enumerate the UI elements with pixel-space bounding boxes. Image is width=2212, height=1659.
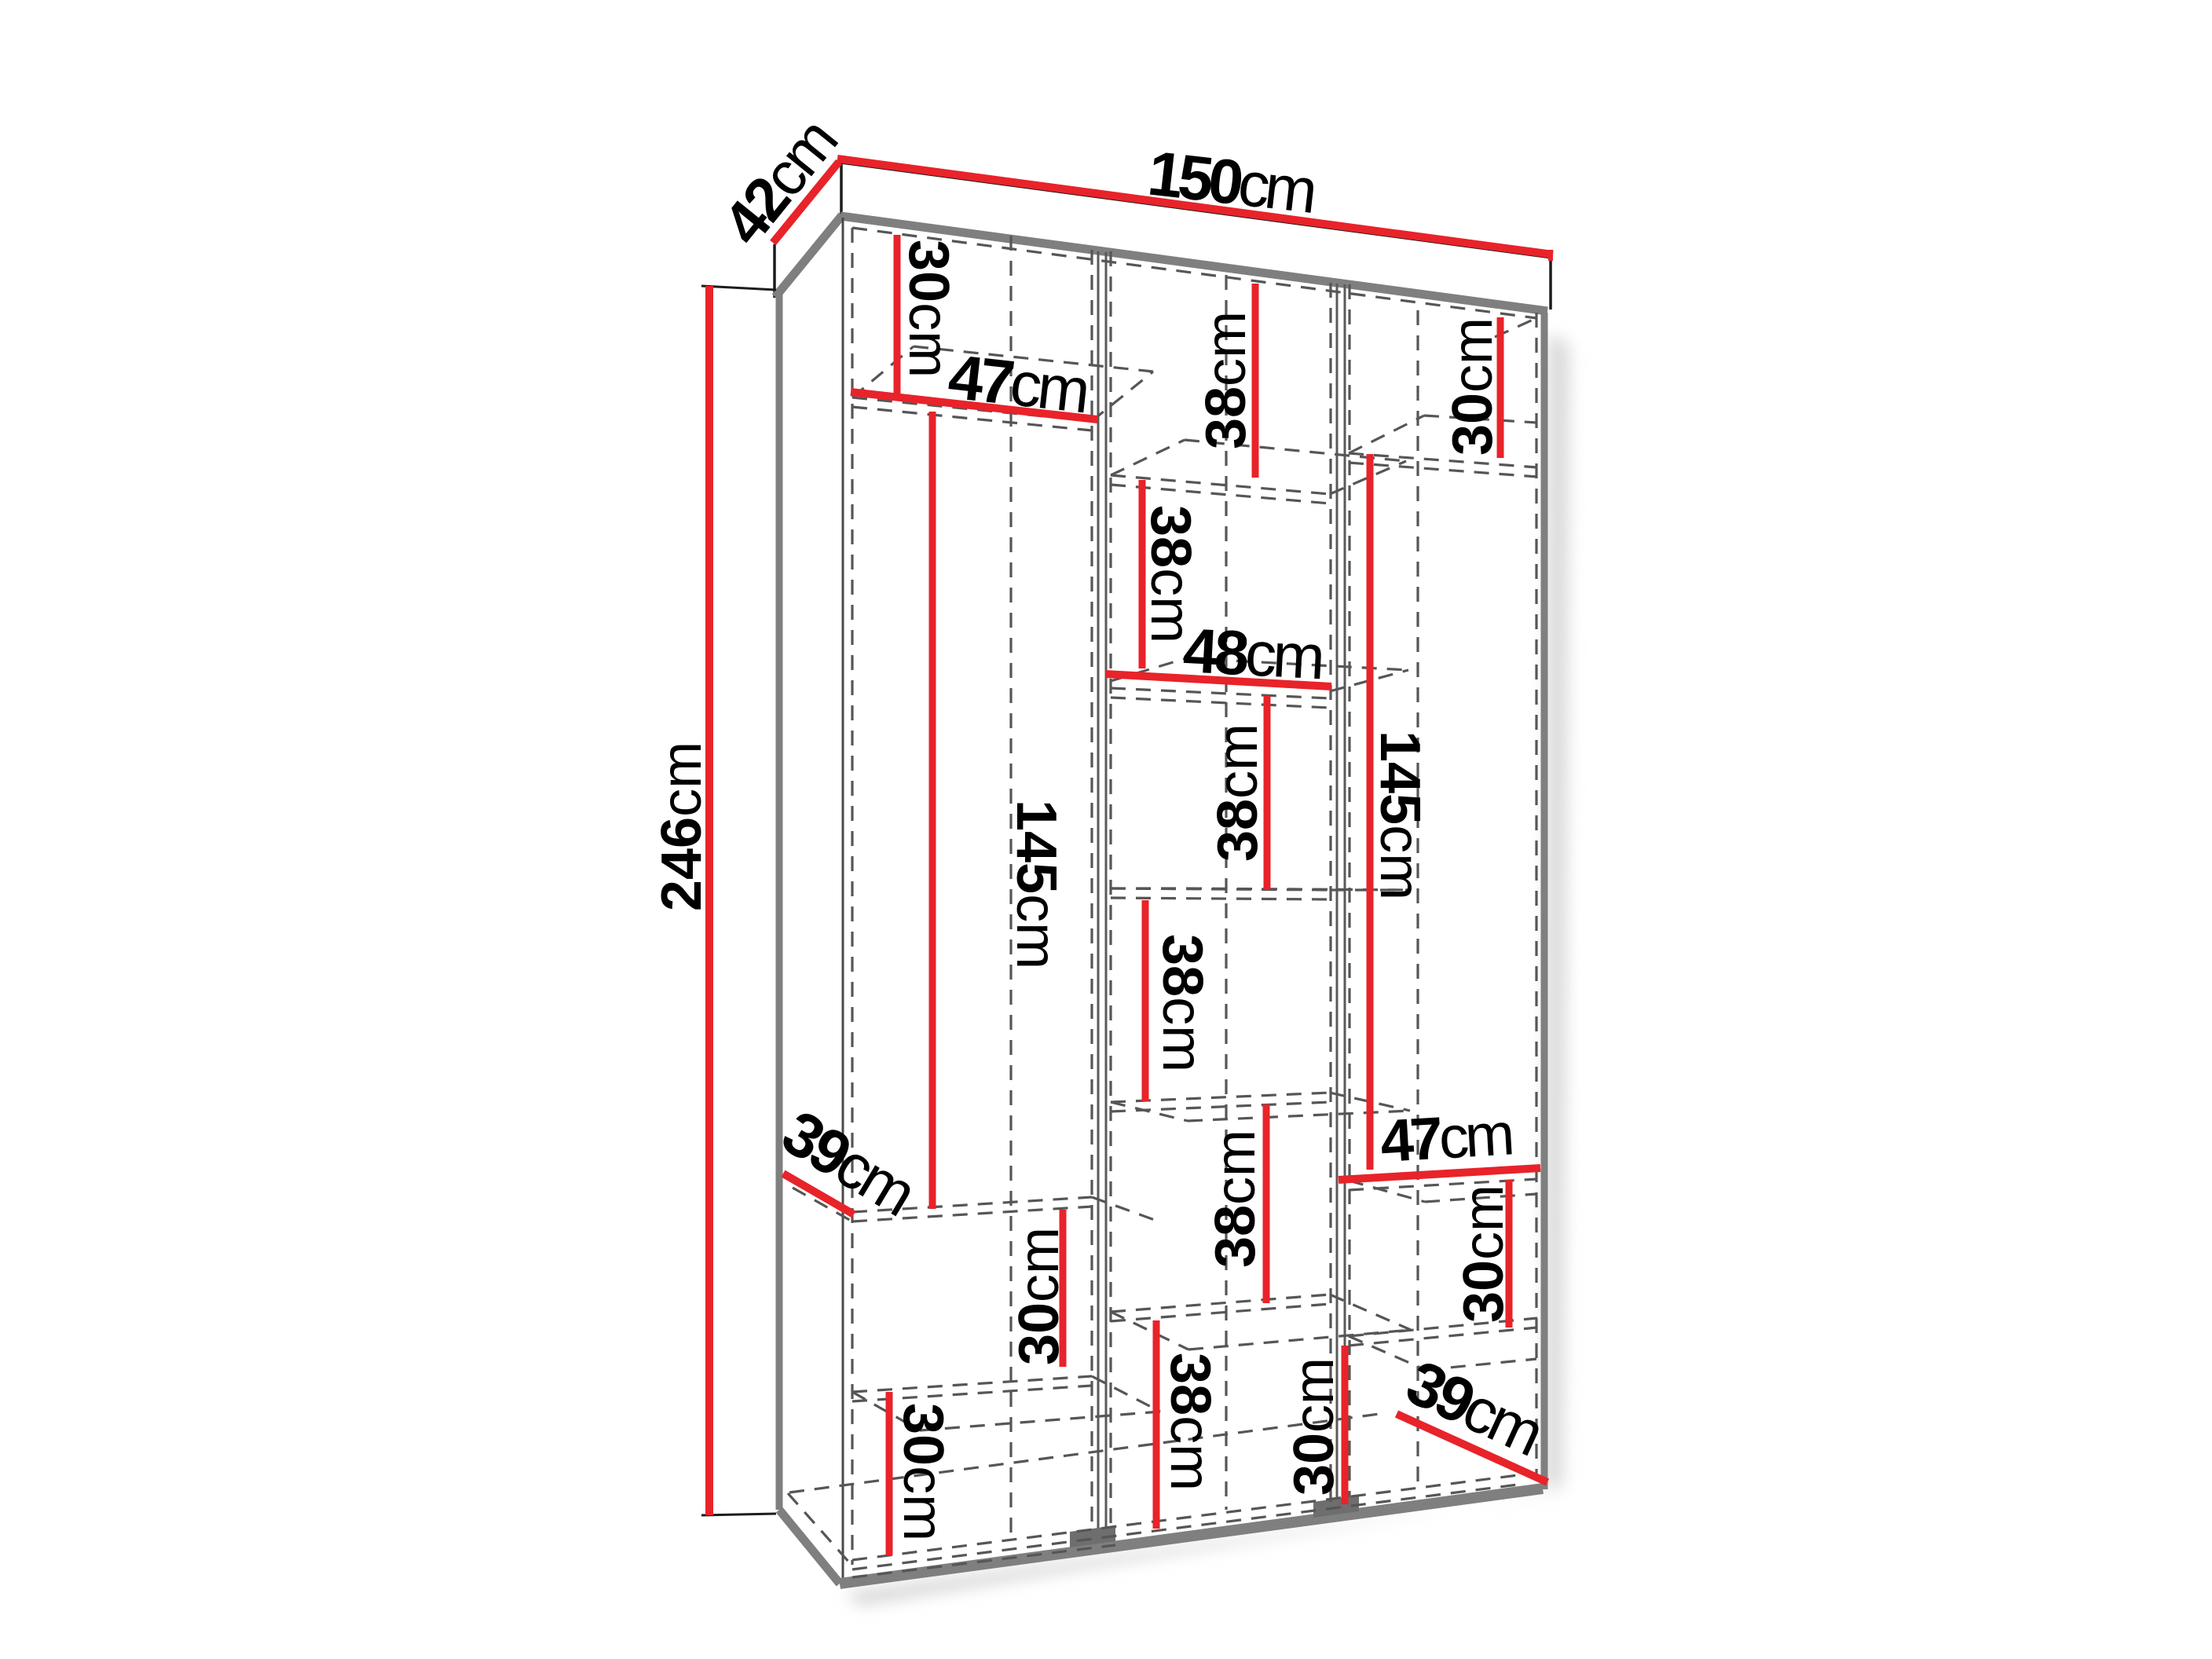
svg-text:30cm: 30cm bbox=[1283, 1357, 1346, 1496]
svg-text:145cm: 145cm bbox=[1368, 731, 1431, 900]
svg-text:30cm: 30cm bbox=[892, 1403, 954, 1541]
svg-text:246cm: 246cm bbox=[650, 742, 713, 911]
svg-text:38cm: 38cm bbox=[1151, 934, 1214, 1072]
svg-text:30cm: 30cm bbox=[1452, 1185, 1515, 1323]
svg-text:47cm: 47cm bbox=[1379, 1101, 1513, 1175]
svg-text:38cm: 38cm bbox=[1195, 311, 1258, 449]
svg-text:48cm: 48cm bbox=[1181, 615, 1323, 692]
svg-text:30cm: 30cm bbox=[1008, 1227, 1071, 1365]
svg-text:145cm: 145cm bbox=[1005, 800, 1068, 969]
svg-text:38cm: 38cm bbox=[1159, 1353, 1221, 1491]
svg-text:38cm: 38cm bbox=[1204, 1130, 1267, 1268]
svg-text:30cm: 30cm bbox=[1441, 317, 1504, 456]
svg-text:38cm: 38cm bbox=[1207, 723, 1269, 862]
